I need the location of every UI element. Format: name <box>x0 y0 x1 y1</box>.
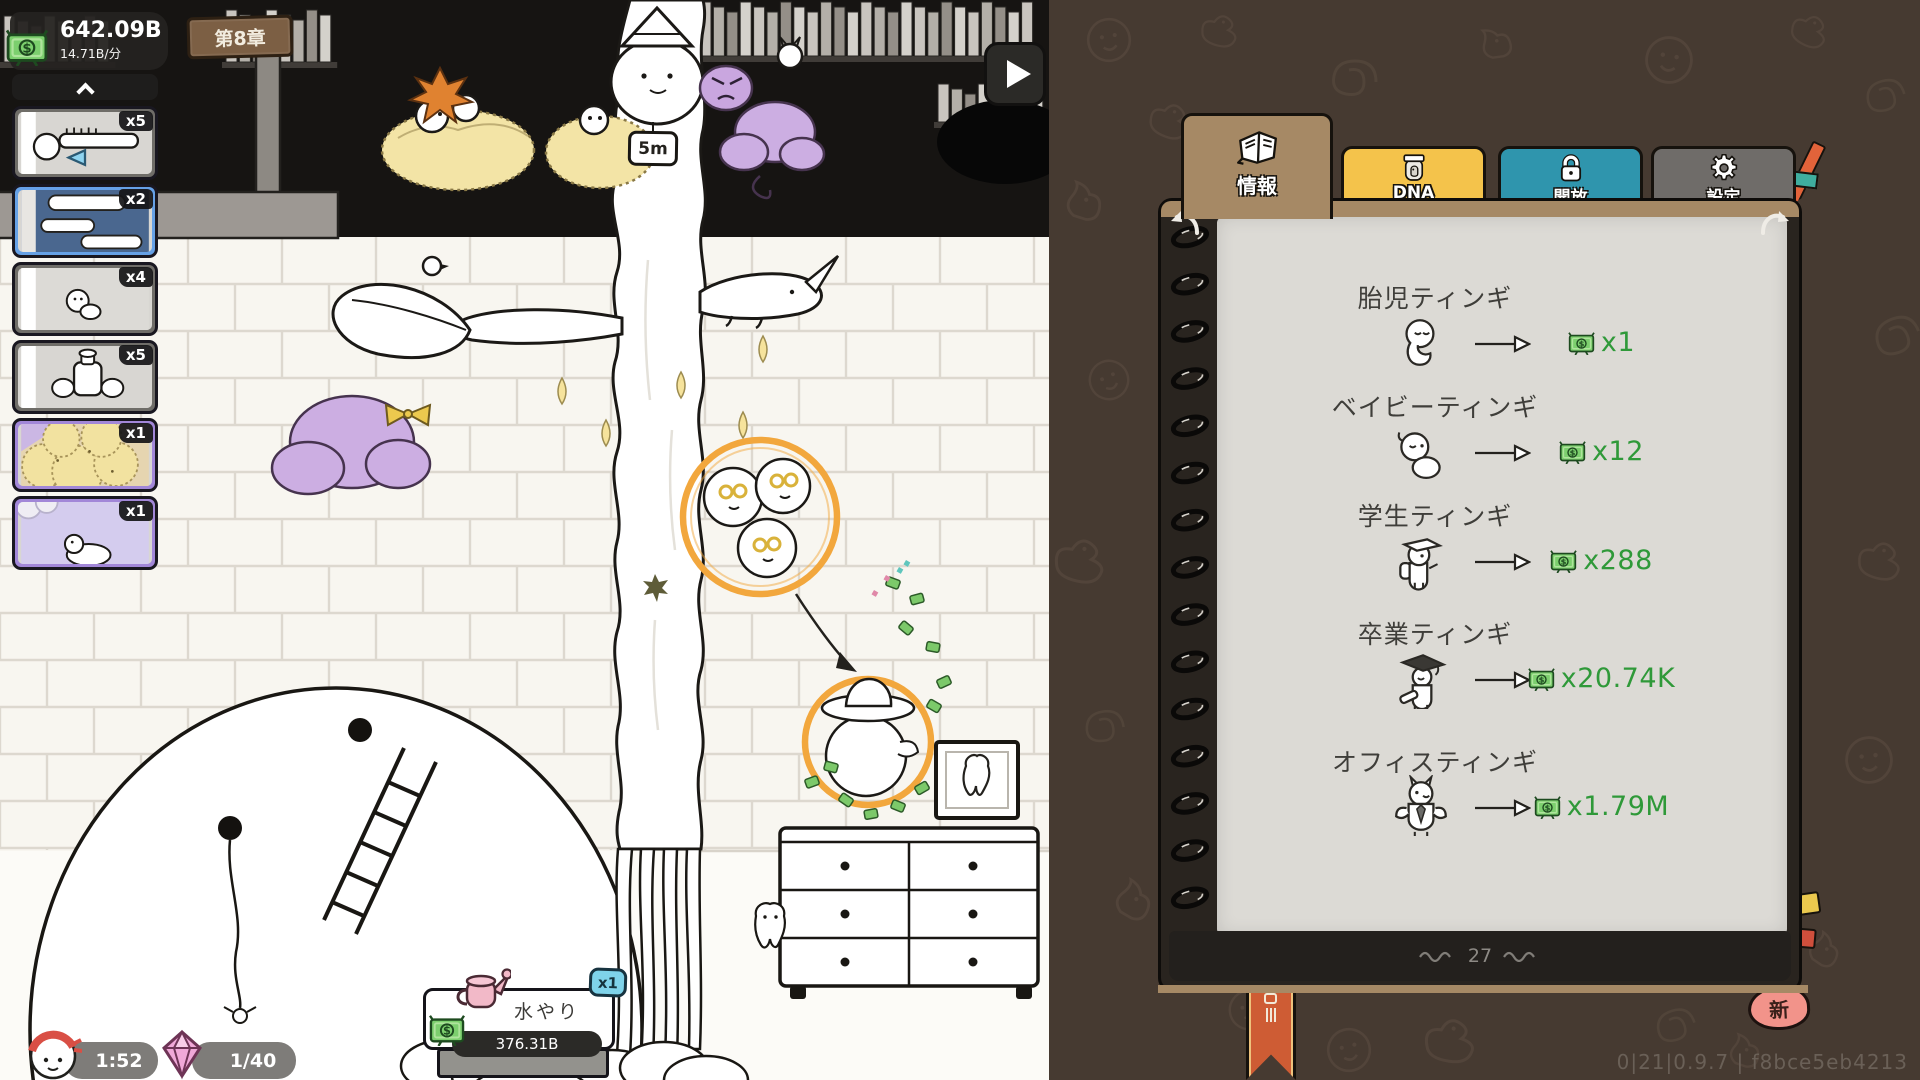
notebook-page: 胎児ティンギ$x1ベイビーティンギ$x12学生ティンギ$x288卒業ティンギ$x… <box>1217 217 1787 935</box>
squiggle-right <box>1502 950 1542 962</box>
page-turn-right-icon <box>1755 207 1793 241</box>
play-icon <box>1007 60 1031 88</box>
fetus-doodle <box>1389 309 1453 375</box>
card-count-badge: x1 <box>119 501 153 521</box>
unit-card-yellow-fluff[interactable]: x1 <box>12 418 158 492</box>
entry-value: $x1 <box>1479 313 1723 371</box>
page-footer: 27 <box>1169 931 1791 981</box>
spiral-binding <box>1163 223 1217 939</box>
money-bill-creature-icon: $ <box>1533 794 1562 819</box>
small-bird <box>423 257 441 275</box>
runner-face-icon <box>24 1024 82 1080</box>
tooth-picture-frame <box>936 742 1018 818</box>
page-number: 27 <box>1468 945 1492 967</box>
creature-entry-list: 胎児ティンギ$x1ベイビーティンギ$x12学生ティンギ$x288卒業ティンギ$x… <box>1217 279 1787 865</box>
unit-card-lavender-creature[interactable]: x1 <box>12 496 158 570</box>
hanging-creature <box>233 1009 247 1023</box>
money-bill-creature-icon: $ <box>1527 666 1556 691</box>
version-text: 0|21|0.9.7 | f8bce5eb4213 <box>1560 1050 1908 1074</box>
unit-card-bottle-creature[interactable]: x5 <box>12 340 158 414</box>
watering-count-badge: x1 <box>589 967 628 997</box>
tab-label: 情報 <box>1237 170 1277 199</box>
money-bill-creature-icon: $ <box>4 26 50 66</box>
svg-text:$: $ <box>1538 674 1544 684</box>
game-scene-area[interactable]: 642.09B 14.71B/分 $ 第8章 5m x5x2x4x5x1x1 水… <box>0 0 1049 1080</box>
play-button[interactable] <box>984 42 1046 106</box>
unit-card-bones[interactable]: x2 <box>12 184 158 258</box>
creature-entry: 学生ティンギ$x288 <box>1217 497 1787 615</box>
shelf-creature <box>778 44 802 68</box>
unit-card-sidebar: x5x2x4x5x1x1 <box>12 74 158 574</box>
bookmark-ribbon-icon <box>1261 992 1281 1028</box>
page-turn-right-button[interactable] <box>1755 207 1793 245</box>
watering-cost-pill: 376.31B <box>452 1031 602 1057</box>
watering-can-icon <box>447 966 511 1016</box>
gear-icon <box>1707 153 1741 183</box>
svg-text:$: $ <box>1579 338 1585 348</box>
chevron-up-icon <box>76 82 94 100</box>
money-multiplier: x1.79M <box>1567 791 1669 822</box>
treetop-creature[interactable] <box>611 40 703 124</box>
game-screen: 642.09B 14.71B/分 $ 第8章 5m x5x2x4x5x1x1 水… <box>0 0 1920 1080</box>
card-count-badge: x2 <box>119 189 153 209</box>
card-count-badge: x5 <box>119 345 153 365</box>
sidebar-collapse-button[interactable] <box>12 74 158 100</box>
svg-text:$: $ <box>1561 556 1567 566</box>
graduate-doodle <box>1389 645 1453 711</box>
entry-value: $x20.74K <box>1479 649 1723 707</box>
svg-text:$: $ <box>443 1024 451 1038</box>
entry-value: $x12 <box>1479 422 1723 480</box>
book-icon <box>1234 128 1280 166</box>
notebook: 胎児ティンギ$x1ベイビーティンギ$x12学生ティンギ$x288卒業ティンギ$x… <box>1158 198 1802 992</box>
creature-entry: ベイビーティンギ$x12 <box>1217 388 1787 497</box>
dresser <box>780 828 1038 999</box>
svg-text:$: $ <box>22 42 31 57</box>
timer-value: 1:52 <box>95 1050 142 1072</box>
specimen-jar-icon <box>1397 153 1431 183</box>
money-multiplier: x12 <box>1592 436 1644 467</box>
entry-value: $x1.79M <box>1479 777 1723 835</box>
squiggle-left <box>1418 950 1458 962</box>
card-count-badge: x1 <box>119 423 153 443</box>
money-multiplier: x20.74K <box>1561 663 1675 694</box>
money-multiplier: x288 <box>1583 545 1653 576</box>
gem-icon <box>156 1026 208 1080</box>
unit-card-brush-creature[interactable]: x5 <box>12 106 158 180</box>
unit-card-list: x5x2x4x5x1x1 <box>12 106 158 570</box>
card-count-badge: x5 <box>119 111 153 131</box>
money-bill-creature-icon: $ <box>427 1012 467 1046</box>
money-bill-creature-icon: $ <box>1567 330 1596 355</box>
svg-text:$: $ <box>1544 802 1550 812</box>
office-doodle <box>1389 773 1453 839</box>
watering-button[interactable]: 水やり 376.31B $ x1 <box>423 976 623 1080</box>
money-bill-creature-icon: $ <box>1558 439 1587 464</box>
creature-entry: 胎児ティンギ$x1 <box>1217 279 1787 388</box>
money-rate: 14.71B/分 <box>60 43 162 62</box>
card-count-badge: x4 <box>119 267 153 287</box>
creature-entry: オフィスティンギ$x1.79M <box>1217 743 1787 865</box>
lock-icon <box>1554 153 1588 183</box>
unit-card-baby-creature[interactable]: x4 <box>12 262 158 336</box>
svg-text:$: $ <box>1570 447 1576 457</box>
tooth-creature[interactable] <box>755 903 785 947</box>
money-value: 642.09B <box>60 19 162 43</box>
creature-entry: 卒業ティンギ$x20.74K <box>1217 615 1787 743</box>
chapter-sign: 第8章 <box>186 15 293 60</box>
entry-value: $x288 <box>1479 531 1723 589</box>
money-bill-creature-icon: $ <box>1549 548 1578 573</box>
watering-cost: 376.31B <box>496 1035 559 1053</box>
gem-count: 1/40 <box>230 1050 277 1072</box>
angry-purple-blob[interactable] <box>700 66 752 110</box>
baby-doodle <box>1389 418 1453 484</box>
money-multiplier: x1 <box>1601 327 1635 358</box>
notebook-cover-bottom <box>1158 985 1808 993</box>
tab-情報[interactable]: 情報 <box>1181 113 1333 219</box>
student-doodle <box>1389 527 1453 593</box>
height-sign: 5m <box>628 131 679 167</box>
